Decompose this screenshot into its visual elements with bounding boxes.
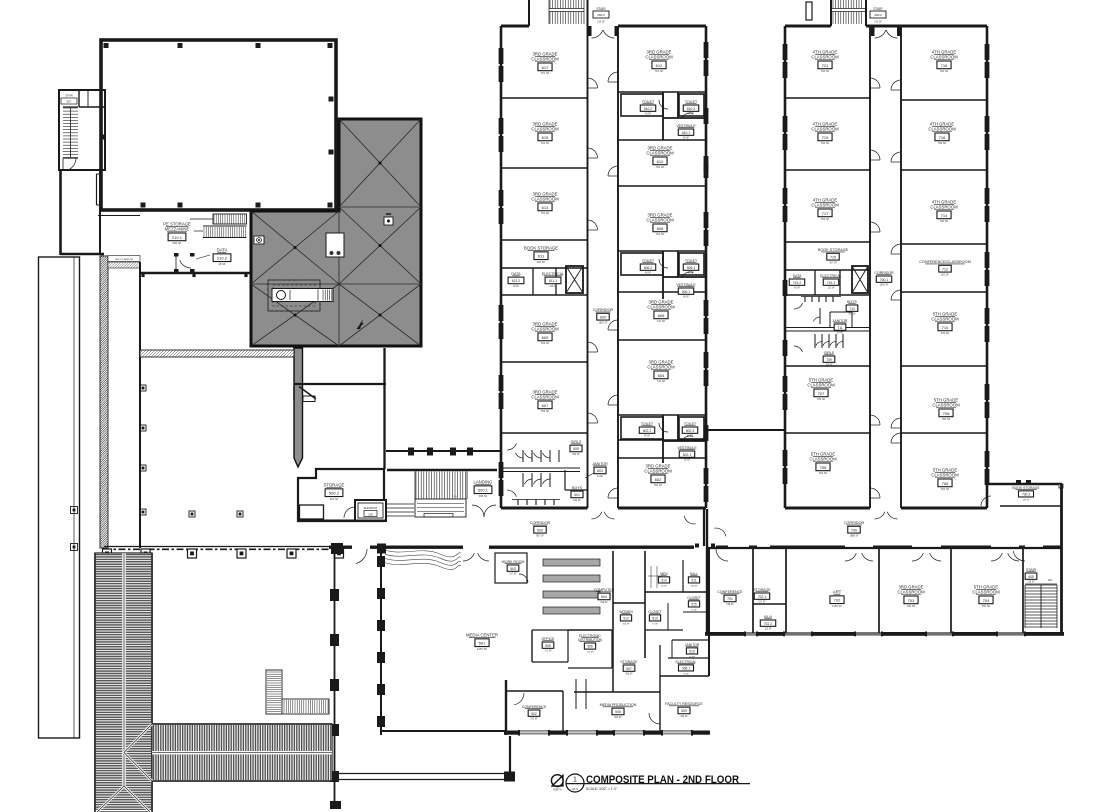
svg-text:515: 515 [691, 602, 697, 606]
svg-text:48 SF: 48 SF [645, 114, 652, 116]
svg-text:JANITOR: JANITOR [685, 643, 700, 647]
svg-text:509: 509 [681, 709, 687, 713]
svg-text:782 SF: 782 SF [821, 141, 830, 145]
svg-text:BOYS: BOYS [572, 486, 583, 490]
svg-text:48 SF: 48 SF [218, 262, 226, 266]
svg-text:782 SF: 782 SF [821, 69, 830, 73]
svg-text:CLASSROOM: CLASSROOM [809, 457, 837, 462]
svg-text:608: 608 [657, 226, 665, 231]
svg-text:310 SF: 310 SF [330, 497, 339, 501]
svg-text:367 SF: 367 SF [829, 261, 837, 264]
svg-text:CONFERENCE: CONFERENCE [522, 705, 547, 709]
svg-text:CLASSROOM: CLASSROOM [897, 590, 925, 595]
svg-text:602.1: 602.1 [683, 453, 692, 457]
svg-text:48 SF: 48 SF [644, 436, 651, 438]
svg-text:DISTRIBUTION: DISTRIBUTION [578, 638, 602, 642]
svg-text:294 SF: 294 SF [848, 314, 856, 316]
svg-text:611.1: 611.1 [549, 279, 557, 283]
svg-text:506.1: 506.1 [682, 666, 690, 670]
svg-text:1888 SF: 1888 SF [850, 534, 860, 537]
svg-text:514: 514 [661, 578, 667, 582]
svg-text:OFFICE: OFFICE [542, 637, 556, 641]
svg-text:741 SF: 741 SF [657, 379, 666, 383]
svg-text:294 SF: 294 SF [573, 500, 581, 502]
svg-text:607: 607 [542, 403, 550, 408]
svg-text:987 SF: 987 SF [536, 534, 544, 537]
svg-text:294 SF: 294 SF [572, 454, 580, 456]
svg-text:400.2: 400.2 [874, 13, 882, 17]
svg-text:24 SF: 24 SF [837, 333, 844, 335]
svg-text:158 SF: 158 SF [726, 604, 734, 606]
svg-text:KILN: KILN [764, 615, 772, 619]
svg-text:782 SF: 782 SF [942, 417, 951, 421]
svg-text:242 SF: 242 SF [530, 719, 538, 721]
svg-text:782 SF: 782 SF [821, 217, 830, 221]
svg-text:782 SF: 782 SF [941, 487, 950, 491]
svg-text:317 SF: 317 SF [758, 602, 766, 604]
svg-text:611.2: 611.2 [512, 279, 520, 283]
svg-text:COMPUTER: COMPUTER [594, 588, 615, 592]
svg-text:700: 700 [851, 528, 857, 532]
svg-text:WOMEN: WOMEN [619, 610, 633, 614]
svg-text:708: 708 [943, 411, 951, 416]
svg-text:500.1: 500.1 [478, 488, 489, 493]
svg-text:506: 506 [587, 645, 593, 649]
svg-text:CLASSROOM: CLASSROOM [931, 317, 959, 322]
svg-text:CLASSROOM: CLASSROOM [811, 127, 839, 132]
svg-text:40 SF: 40 SF [794, 288, 801, 290]
svg-text:BOOK STORAGE: BOOK STORAGE [818, 248, 849, 252]
svg-text:484 SF: 484 SF [680, 716, 688, 718]
svg-text:1: 1 [573, 776, 577, 783]
svg-text:BOYS: BOYS [847, 300, 857, 304]
svg-text:382 SF: 382 SF [614, 717, 622, 719]
svg-text:703: 703 [908, 598, 916, 603]
svg-text:716: 716 [939, 135, 947, 140]
svg-text:500.2: 500.2 [329, 491, 340, 496]
svg-text:FACULTY RESOURCE: FACULTY RESOURCE [665, 702, 703, 706]
svg-text:TOILET: TOILET [685, 259, 698, 263]
svg-text:TOILET: TOILET [642, 259, 655, 263]
svg-text:98 SF: 98 SF [684, 460, 691, 462]
svg-text:606: 606 [658, 313, 666, 318]
svg-text:386 SF: 386 SF [625, 674, 633, 676]
svg-text:VESTIBULE: VESTIBULE [676, 124, 696, 128]
svg-text:127 SF: 127 SF [509, 574, 517, 576]
svg-text:98 SF: 98 SF [683, 138, 690, 140]
svg-text:741 SF: 741 SF [657, 319, 666, 323]
svg-text:405: 405 [1028, 575, 1034, 579]
svg-text:CLASSROOM: CLASSROOM [646, 218, 674, 223]
svg-text:STAIR: STAIR [1026, 568, 1037, 572]
svg-text:CLASSROOM: CLASSROOM [531, 57, 559, 62]
svg-text:ELECTRICAL: ELECTRICAL [676, 660, 697, 664]
svg-text:700.1: 700.1 [880, 278, 889, 282]
svg-text:CLASSROOM: CLASSROOM [647, 365, 675, 370]
svg-text:604: 604 [658, 373, 666, 378]
svg-text:609: 609 [542, 335, 550, 340]
svg-text:502 SF: 502 SF [941, 273, 949, 276]
svg-text:STORAGE: STORAGE [324, 483, 345, 488]
svg-text:782 SF: 782 SF [938, 141, 947, 145]
svg-text:602.3: 602.3 [686, 429, 695, 433]
svg-text:709: 709 [826, 358, 832, 362]
svg-text:CLASSROOM: CLASSROOM [531, 127, 559, 132]
svg-text:94 SF: 94 SF [661, 585, 667, 587]
svg-text:24 SF: 24 SF [597, 476, 604, 478]
svg-text:GIRLS: GIRLS [824, 351, 835, 355]
svg-text:316 SF: 316 SF [874, 21, 882, 24]
svg-text:CLASSROOM: CLASSROOM [930, 55, 958, 60]
svg-text:STAIR: STAIR [596, 7, 606, 11]
svg-text:613: 613 [542, 205, 550, 210]
svg-text:MEN: MEN [660, 572, 668, 576]
svg-text:615: 615 [542, 135, 550, 140]
svg-text:606.1: 606.1 [682, 290, 691, 294]
svg-text:781 SF: 781 SF [541, 211, 550, 215]
svg-text:719: 719 [822, 135, 830, 140]
svg-text:LAY-3 CORRIDOR: LAY-3 CORRIDOR [115, 258, 134, 261]
svg-text:1802 SF: 1802 SF [599, 321, 609, 324]
svg-text:113 SF: 113 SF [765, 629, 773, 631]
svg-text:183 SF: 183 SF [1023, 499, 1031, 501]
svg-text:781 SF: 781 SF [656, 232, 665, 236]
svg-text:600: 600 [600, 315, 606, 319]
svg-text:NORTH: NORTH [553, 790, 561, 792]
svg-text:CH: CH [453, 496, 457, 498]
svg-text:210.2: 210.2 [217, 256, 228, 261]
svg-text:CLASSROOM: CLASSROOM [531, 395, 559, 400]
svg-text:15 SF: 15 SF [652, 623, 658, 625]
svg-text:502: 502 [531, 712, 537, 716]
svg-text:700.3: 700.3 [1022, 492, 1030, 496]
svg-text:781 SF: 781 SF [655, 69, 664, 73]
svg-text:507: 507 [626, 667, 632, 671]
svg-text:LANDING: LANDING [474, 480, 493, 485]
svg-text:BOOK STORAGE: BOOK STORAGE [524, 246, 558, 251]
svg-text:782 SF: 782 SF [907, 604, 916, 608]
svg-text:40 SF: 40 SF [513, 286, 520, 288]
svg-text:CLASSROOM: CLASSROOM [646, 151, 674, 156]
svg-text:ELEVATOR: ELEVATOR [364, 506, 378, 510]
svg-text:610: 610 [657, 159, 665, 164]
svg-text:CLASSROOM: CLASSROOM [807, 383, 835, 388]
svg-text:702: 702 [834, 598, 842, 603]
svg-text:CLASSROOM: CLASSROOM [811, 203, 839, 208]
svg-text:A1.6: A1.6 [572, 787, 579, 791]
svg-text:500: 500 [537, 528, 543, 532]
svg-text:504: 504 [601, 595, 607, 599]
svg-text:782 SF: 782 SF [941, 331, 950, 335]
svg-text:712: 712 [942, 267, 948, 271]
svg-text:CLASSROOM: CLASSROOM [972, 590, 1000, 595]
svg-text:512: 512 [623, 616, 629, 620]
svg-text:711: 711 [837, 326, 842, 330]
svg-text:713: 713 [849, 307, 855, 311]
svg-text:1158 SF: 1158 SF [832, 604, 842, 608]
svg-text:CLASSROOM: CLASSROOM [811, 55, 839, 60]
svg-text:207: 207 [67, 100, 72, 104]
svg-text:CLASSROOM: CLASSROOM [531, 197, 559, 202]
svg-text:TOILET: TOILET [685, 100, 698, 104]
svg-text:CLASSROOM: CLASSROOM [645, 55, 673, 60]
svg-text:601: 601 [574, 493, 580, 497]
svg-text:TOILET: TOILET [642, 100, 655, 104]
svg-text:171 SF: 171 SF [544, 651, 552, 653]
svg-text:DATA: DATA [217, 248, 228, 253]
svg-text:781 SF: 781 SF [541, 141, 550, 145]
svg-text:606.3: 606.3 [687, 266, 696, 270]
svg-text:782 SF: 782 SF [819, 471, 828, 475]
svg-text:769 SF: 769 SF [541, 341, 550, 345]
svg-text:781 SF: 781 SF [656, 165, 665, 169]
svg-text:CLASSROOM: CLASSROOM [644, 469, 672, 474]
svg-text:48 SF: 48 SF [687, 436, 694, 438]
svg-text:610.3: 610.3 [687, 107, 696, 111]
svg-text:612: 612 [656, 63, 664, 68]
svg-text:135: 135 [368, 512, 373, 516]
svg-text:CLASSROOM: CLASSROOM [931, 473, 959, 478]
svg-text:JANITOR: JANITOR [833, 319, 848, 323]
svg-text:721: 721 [822, 63, 830, 68]
svg-text:294 SF: 294 SF [825, 365, 833, 367]
svg-text:CONFERENCE/CLASSROOM: CONFERENCE/CLASSROOM [919, 260, 970, 264]
svg-text:508: 508 [615, 710, 621, 714]
svg-text:4487 SF: 4487 SF [477, 647, 488, 651]
svg-text:714: 714 [941, 213, 949, 218]
svg-text:STAIR: STAIR [65, 94, 73, 98]
svg-text:781 SF: 781 SF [654, 483, 663, 487]
svg-text:113 SF: 113 SF [828, 288, 836, 290]
svg-text:602: 602 [655, 477, 663, 482]
svg-text:TOILET: TOILET [641, 422, 654, 426]
svg-text:VESTIBULE: VESTIBULE [676, 283, 696, 287]
svg-text:782 SF: 782 SF [982, 604, 991, 608]
svg-text:DN: DN [1048, 579, 1052, 582]
svg-text:98 SF: 98 SF [683, 297, 690, 299]
svg-text:BOOK STORAGE: BOOK STORAGE [1012, 486, 1040, 490]
svg-text:781 SF: 781 SF [541, 71, 550, 75]
svg-text:CLASSROOM: CLASSROOM [647, 305, 675, 310]
svg-text:103 SF: 103 SF [623, 623, 631, 625]
svg-text:715.1: 715.1 [827, 281, 836, 285]
svg-text:505: 505 [545, 644, 551, 648]
svg-text:CORRIDOR: CORRIDOR [874, 271, 894, 275]
svg-text:715.2: 715.2 [793, 281, 802, 285]
svg-text:606.2: 606.2 [644, 266, 653, 270]
svg-text:48 SF: 48 SF [688, 273, 695, 275]
svg-text:STORAGE: STORAGE [620, 660, 638, 664]
svg-text:510: 510 [689, 649, 695, 653]
svg-text:CORRIDOR: CORRIDOR [530, 521, 551, 525]
svg-text:710: 710 [942, 325, 950, 330]
svg-text:CLASSROOM: CLASSROOM [932, 403, 960, 408]
svg-text:701: 701 [727, 597, 733, 601]
svg-text:GIRLS: GIRLS [571, 440, 582, 444]
svg-text:DATA: DATA [511, 272, 521, 276]
svg-text:CLOSET: CLOSET [687, 596, 701, 600]
svg-text:76 SF: 76 SF [683, 673, 689, 675]
svg-text:603: 603 [597, 469, 603, 473]
svg-text:246 SF: 246 SF [587, 651, 595, 653]
svg-text:113 SF: 113 SF [549, 286, 557, 288]
svg-text:718: 718 [941, 63, 949, 68]
svg-text:706: 706 [942, 481, 950, 486]
svg-text:717: 717 [822, 211, 830, 216]
svg-text:CLASSROOM: CLASSROOM [928, 127, 956, 132]
svg-text:TOILET: TOILET [684, 422, 697, 426]
svg-text:ART: ART [833, 590, 842, 595]
svg-text:702.2: 702.2 [764, 622, 773, 626]
svg-text:CLASSROOM: CLASSROOM [930, 205, 958, 210]
svg-text:SCALE: 3/32" = 1'-0": SCALE: 3/32" = 1'-0" [586, 787, 618, 791]
svg-text:602.2: 602.2 [643, 429, 652, 433]
svg-text:300.2: 300.2 [597, 13, 605, 17]
svg-text:CLASSROOM: CLASSROOM [531, 327, 559, 332]
svg-text:782 SF: 782 SF [817, 397, 826, 401]
svg-text:503: 503 [510, 567, 516, 571]
svg-text:48 SF: 48 SF [645, 273, 652, 275]
svg-text:JANITOR: JANITOR [592, 462, 608, 466]
svg-text:598 SF: 598 SF [479, 494, 488, 498]
svg-text:707: 707 [818, 391, 826, 396]
svg-text:782 SF: 782 SF [940, 69, 949, 73]
svg-text:715: 715 [830, 255, 836, 259]
svg-text:210.1: 210.1 [172, 235, 183, 240]
svg-text:702.1: 702.1 [758, 595, 767, 599]
svg-text:STORAGE: STORAGE [753, 588, 771, 592]
svg-text:CORRIDOR: CORRIDOR [593, 308, 614, 312]
svg-text:ELECTRICAL: ELECTRICAL [820, 274, 842, 278]
svg-text:316 SF: 316 SF [1027, 582, 1035, 584]
svg-text:769 SF: 769 SF [541, 409, 550, 413]
svg-text:HALL: HALL [690, 572, 699, 576]
svg-text:367 SF: 367 SF [537, 260, 546, 264]
svg-text:ELECTRICAL: ELECTRICAL [542, 272, 564, 276]
svg-text:DATA: DATA [793, 274, 803, 278]
svg-text:610.1: 610.1 [682, 131, 691, 135]
svg-text:686 SF: 686 SF [173, 241, 182, 245]
svg-text:32 SF: 32 SF [689, 656, 695, 658]
svg-text:782 SF: 782 SF [940, 219, 949, 223]
svg-text:705: 705 [820, 465, 828, 470]
svg-text:MEDIA CENTER: MEDIA CENTER [466, 633, 498, 638]
svg-text:704: 704 [983, 598, 991, 603]
svg-text:MEDIA PRODUCTION: MEDIA PRODUCTION [600, 703, 637, 707]
svg-text:513: 513 [652, 616, 658, 620]
svg-text:610.2: 610.2 [644, 107, 653, 111]
svg-text:316 SF: 316 SF [597, 21, 605, 24]
svg-text:1802 SF: 1802 SF [880, 285, 889, 287]
svg-text:VESTIBULE: VESTIBULE [677, 446, 697, 450]
svg-text:MEZZANINE: MEZZANINE [165, 227, 190, 232]
svg-text:511: 511 [691, 578, 696, 582]
svg-text:611: 611 [538, 254, 545, 259]
svg-text:501: 501 [479, 641, 487, 646]
svg-text:CORRIDOR: CORRIDOR [844, 521, 865, 525]
svg-text:48 SF: 48 SF [688, 114, 695, 116]
svg-text:CONFERENCE: CONFERENCE [717, 590, 743, 594]
svg-text:CLOSET: CLOSET [648, 610, 662, 614]
svg-text:526 SF: 526 SF [600, 602, 608, 604]
svg-text:617: 617 [542, 65, 550, 70]
svg-text:260 SF: 260 SF [691, 585, 699, 587]
svg-text:12 SF: 12 SF [691, 609, 697, 611]
svg-text:605: 605 [573, 447, 579, 451]
svg-text:STAIR: STAIR [873, 7, 883, 11]
svg-text:WORK ROOM: WORK ROOM [502, 560, 525, 564]
